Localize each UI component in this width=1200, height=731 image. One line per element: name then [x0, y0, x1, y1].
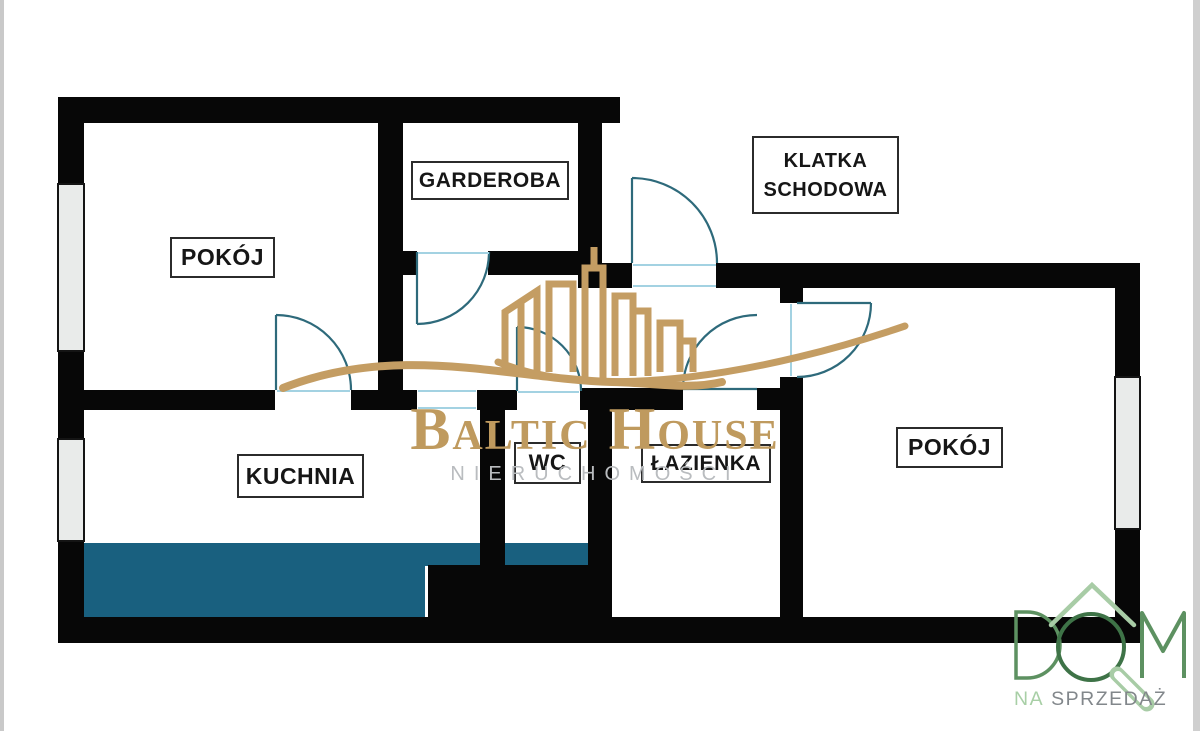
- wc-counter-strip-fill: [425, 543, 588, 566]
- wall-outer-left: [58, 97, 84, 643]
- room-label-kuchnia-text: KUCHNIA: [246, 463, 356, 490]
- wall-garderoba-bottom-west: [378, 251, 417, 275]
- room-label-pokoj-left: POKÓJ: [170, 237, 275, 278]
- floor-plan-canvas: POKÓJ GARDEROBA KLATKA SCHODOWA KUCHNIA …: [0, 0, 1200, 731]
- wall-shaft-block: [428, 565, 612, 620]
- room-label-garderoba-text: GARDEROBA: [419, 169, 561, 193]
- lazienka-door-arc: [683, 315, 757, 389]
- right-edge-band: [1193, 0, 1200, 731]
- pokoj-right-door-arc: [797, 303, 871, 377]
- window-kuchnia: [57, 438, 85, 542]
- wc-door-arc: [517, 327, 581, 391]
- wall-kitchen-top-west: [58, 390, 275, 410]
- room-label-pokoj-right-text: POKÓJ: [908, 434, 991, 461]
- room-label-klatka-line1: KLATKA: [784, 151, 868, 171]
- kitchen-counter-fill: [84, 543, 425, 617]
- wall-outer-bottom: [58, 617, 1140, 643]
- watermark-subtitle-text: NIERUCHOMOŚCI: [370, 464, 820, 484]
- room-label-klatka-schodowa: KLATKA SCHODOWA: [752, 136, 899, 214]
- wall-entry-stub: [598, 263, 632, 288]
- wall-top-right-section: [716, 263, 1140, 288]
- left-edge-band: [0, 0, 4, 731]
- garderoba-door-arc: [417, 252, 489, 324]
- wall-outer-top: [58, 97, 620, 123]
- pokoj-left-door-arc: [276, 315, 351, 390]
- wall-garderoba-bottom-east: [488, 251, 602, 275]
- room-label-kuchnia: KUCHNIA: [237, 454, 364, 498]
- wall-pokoj-right-stub: [780, 288, 803, 303]
- room-label-klatka-line2: SCHODOWA: [764, 180, 888, 200]
- dom-badge-caption-prefix: NA: [1014, 688, 1044, 710]
- dom-badge-caption: NASPRZEDAŻ: [1014, 690, 1167, 710]
- watermark-brand-text: Baltic House: [370, 399, 820, 459]
- window-pokoj-left: [57, 183, 85, 352]
- entrance-door-arc: [632, 178, 717, 263]
- dom-badge-caption-word: SPRZEDAŻ: [1051, 688, 1167, 710]
- window-pokoj-right: [1114, 376, 1141, 530]
- room-label-pokoj-right: POKÓJ: [896, 427, 1003, 468]
- room-label-pokoj-left-text: POKÓJ: [181, 244, 264, 271]
- room-label-garderoba: GARDEROBA: [411, 161, 569, 200]
- baltic-house-swoosh-icon: [283, 326, 905, 388]
- dom-letter-m: [1142, 613, 1184, 678]
